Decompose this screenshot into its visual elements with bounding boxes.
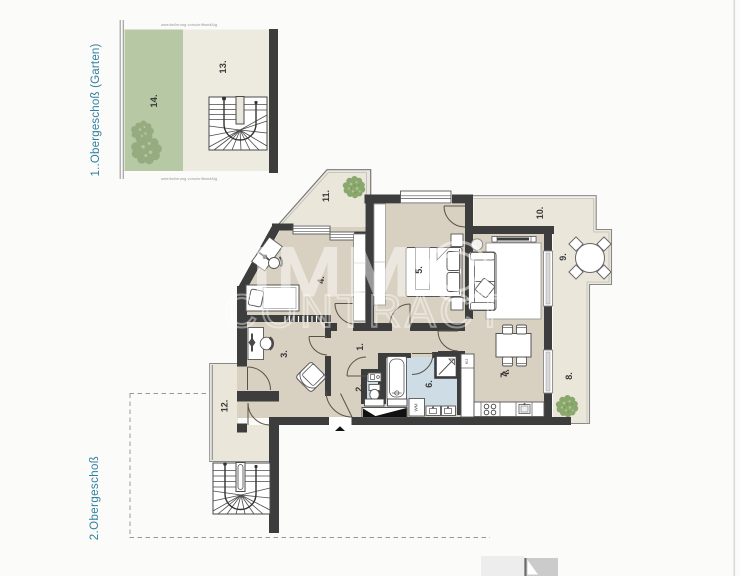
svg-text:7.: 7. <box>499 370 509 378</box>
svg-text:6.: 6. <box>424 380 434 388</box>
svg-text:2.Obergeschoß: 2.Obergeschoß <box>89 456 101 540</box>
svg-text:WM: WM <box>414 403 419 411</box>
svg-text:unterkellerung vorschriftsmäßi: unterkellerung vorschriftsmäßig <box>161 177 217 181</box>
svg-text:5.: 5. <box>414 266 424 274</box>
svg-text:unterkellerung vorschriftsmäßi: unterkellerung vorschriftsmäßig <box>161 23 217 27</box>
svg-text:2.: 2. <box>354 384 364 392</box>
svg-text:1.: 1. <box>355 343 365 351</box>
svg-text:8.: 8. <box>564 372 574 380</box>
svg-text:12.: 12. <box>220 400 230 413</box>
svg-text:14.: 14. <box>149 94 160 107</box>
svg-text:3.: 3. <box>279 350 289 358</box>
svg-text:10.: 10. <box>535 207 545 220</box>
svg-text:13.: 13. <box>218 60 229 73</box>
svg-text:CONTRACT: CONTRACT <box>224 285 508 337</box>
svg-text:11.: 11. <box>321 190 331 202</box>
svg-text:KÜ: KÜ <box>464 359 469 365</box>
svg-text:1..Obergeschoß (Garten): 1..Obergeschoß (Garten) <box>90 43 102 176</box>
svg-text:9.: 9. <box>558 253 568 261</box>
